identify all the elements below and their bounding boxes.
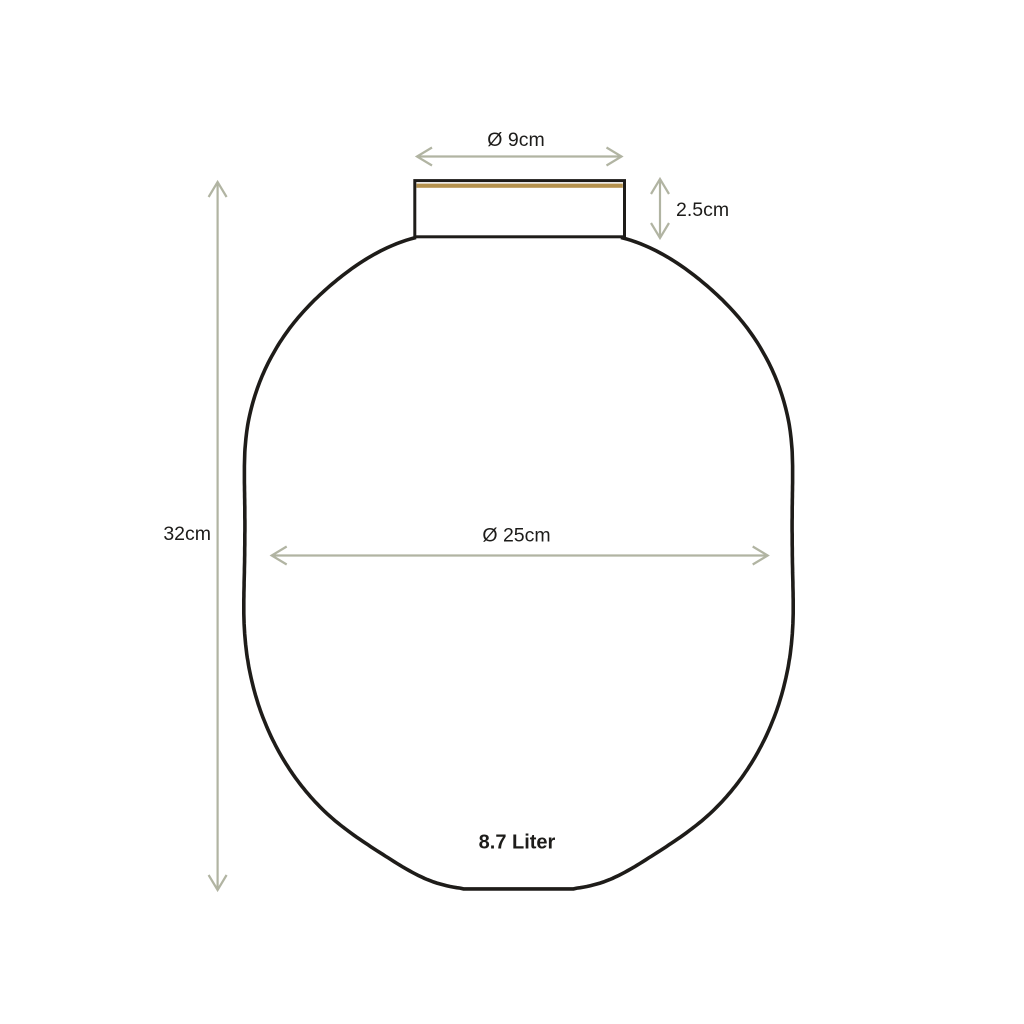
svg-text:8.7 Liter: 8.7 Liter <box>479 832 556 854</box>
svg-text:32cm: 32cm <box>163 523 211 545</box>
svg-text:Ø 25cm: Ø 25cm <box>482 525 550 547</box>
svg-text:2.5cm: 2.5cm <box>676 199 729 221</box>
svg-text:Ø 9cm: Ø 9cm <box>487 129 544 151</box>
